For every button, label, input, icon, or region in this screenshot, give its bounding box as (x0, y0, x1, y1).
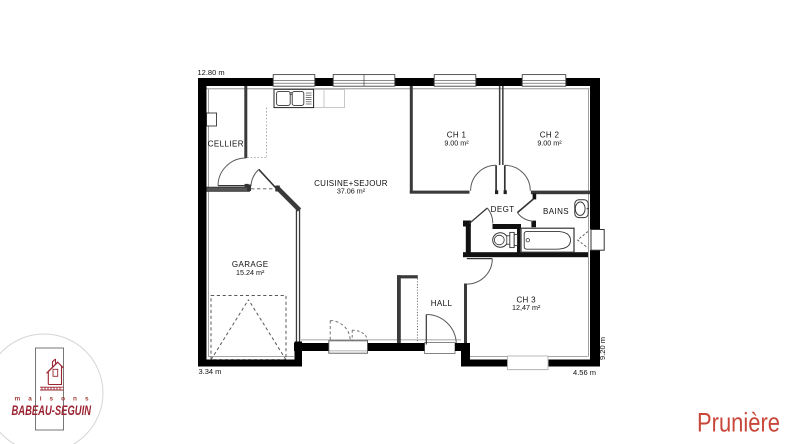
svg-text:Prunière: Prunière (697, 408, 780, 438)
svg-text:CELLIER: CELLIER (208, 140, 244, 149)
svg-text:37.06 m²: 37.06 m² (337, 187, 366, 196)
svg-text:9.00 m²: 9.00 m² (537, 138, 562, 147)
svg-text:12.80 m: 12.80 m (198, 68, 225, 77)
svg-text:3.34 m: 3.34 m (199, 367, 222, 376)
svg-text:BAINS: BAINS (543, 207, 569, 216)
svg-text:12,47 m²: 12,47 m² (512, 303, 541, 312)
svg-text:DEGT: DEGT (491, 205, 515, 214)
svg-text:4.56 m: 4.56 m (573, 368, 596, 377)
svg-text:BABEAU-SEGUIN: BABEAU-SEGUIN (12, 403, 92, 419)
svg-text:15.24 m²: 15.24 m² (236, 268, 265, 277)
svg-text:HALL: HALL (431, 299, 453, 308)
svg-text:9.00 m²: 9.00 m² (444, 138, 469, 147)
